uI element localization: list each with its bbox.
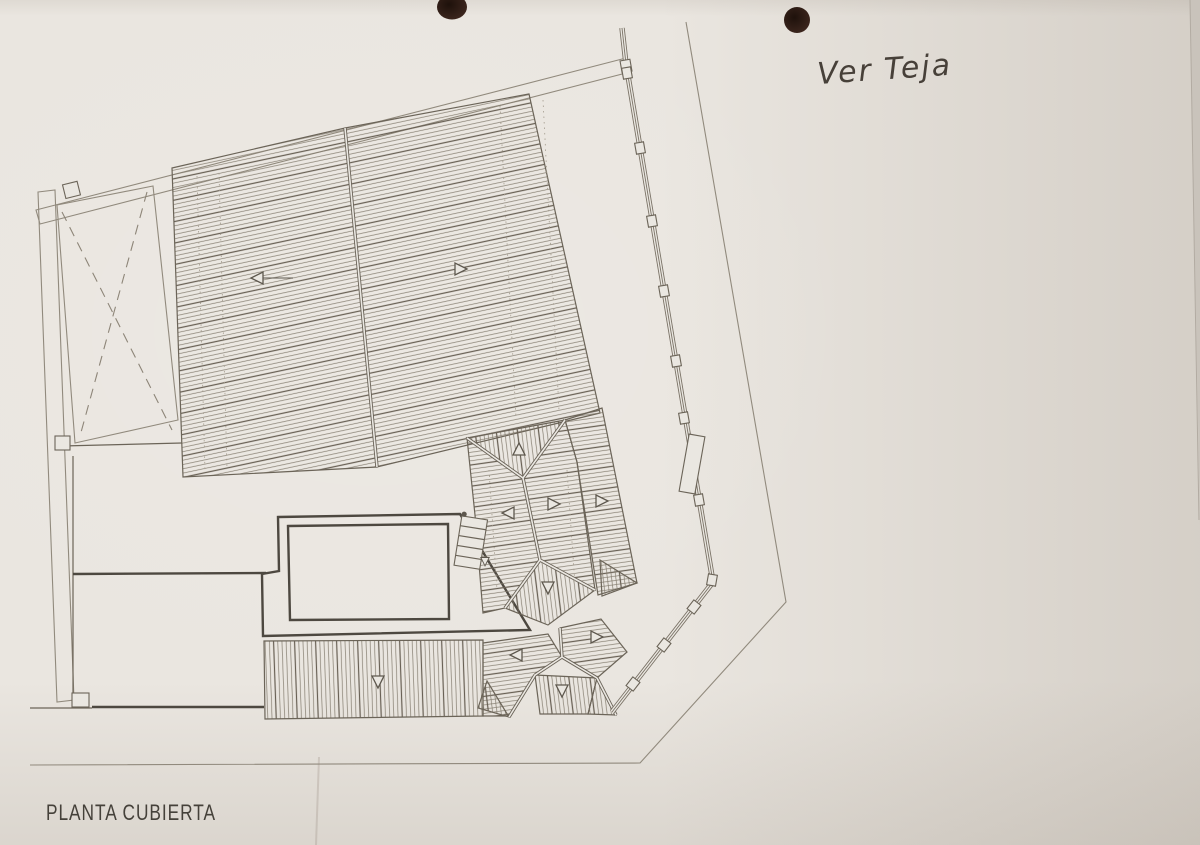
- main-roof-left-plane: [172, 128, 377, 477]
- punch-hole: [784, 7, 810, 33]
- plan-title: PLANTA CUBIERTA: [46, 800, 216, 825]
- fence-post: [707, 574, 718, 586]
- fence-post: [659, 285, 670, 297]
- scanned-roof-plan-photo: PLANTA CUBIERTA Ver Teja: [0, 0, 1200, 845]
- fence-post: [647, 215, 658, 227]
- fence-post: [622, 67, 633, 79]
- lower-roof-south-plane: [535, 675, 597, 714]
- patio-post: [55, 436, 70, 450]
- patio-wall: [73, 573, 266, 574]
- fence-post: [679, 412, 690, 424]
- fence-post: [694, 494, 705, 506]
- fence-post: [635, 142, 646, 154]
- roof-plan-drawing: PLANTA CUBIERTA Ver Teja: [0, 0, 1200, 845]
- wall-corner-post: [63, 181, 81, 198]
- patio-post: [72, 693, 89, 707]
- fence-post: [671, 355, 682, 367]
